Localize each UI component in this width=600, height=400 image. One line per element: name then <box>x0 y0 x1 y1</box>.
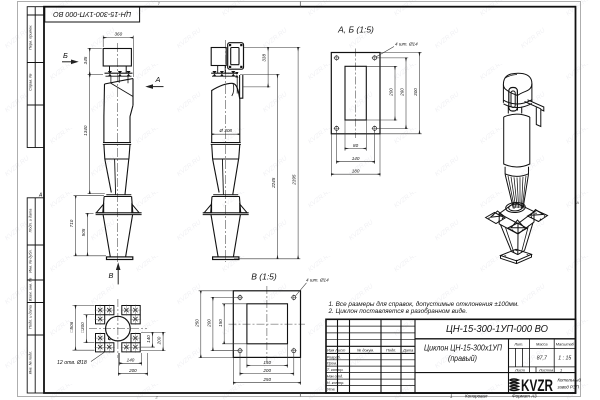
svg-text:1 : 15: 1 : 15 <box>558 356 571 362</box>
svg-text:А: А <box>38 192 43 198</box>
svg-text:200: 200 <box>262 368 271 373</box>
svg-text:140: 140 <box>127 357 135 362</box>
svg-text:Пров.: Пров. <box>327 361 337 366</box>
svg-text:Изм Лист: Изм Лист <box>327 348 346 353</box>
svg-text:140: 140 <box>352 156 360 161</box>
svg-text:4 шт. Ø14: 4 шт. Ø14 <box>306 278 329 283</box>
svg-text:№ докум.: № докум. <box>357 348 374 353</box>
svg-text:Перв. примен.: Перв. примен. <box>29 25 33 50</box>
svg-text:Утв.: Утв. <box>327 387 336 392</box>
svg-text:2245: 2245 <box>271 177 276 189</box>
svg-text:Масштаб: Масштаб <box>556 342 575 347</box>
svg-text:150: 150 <box>263 360 271 365</box>
svg-text:Листов: Листов <box>538 368 553 373</box>
svg-text:Дата: Дата <box>402 348 414 353</box>
svg-text:4 шт. Ø14: 4 шт. Ø14 <box>395 42 418 47</box>
svg-text:А, Б (1:5): А, Б (1:5) <box>337 25 374 35</box>
svg-text:12 отв. Ø18: 12 отв. Ø18 <box>57 360 87 366</box>
svg-text:Взам. инв. №: Взам. инв. № <box>29 278 33 301</box>
svg-text:2. Циклон поставляется в разоб: 2. Циклон поставляется в разобранном вид… <box>328 307 468 315</box>
svg-text:1: 1 <box>560 368 562 373</box>
svg-text:Т. контр.: Т. контр. <box>327 367 344 372</box>
svg-text:505: 505 <box>81 228 86 236</box>
svg-text:345: 345 <box>83 56 88 64</box>
svg-text:710: 710 <box>69 219 74 227</box>
svg-text:Справ. №: Справ. № <box>29 74 33 91</box>
svg-text:338: 338 <box>262 54 267 62</box>
svg-text:140: 140 <box>146 335 151 343</box>
svg-text:Формат А3: Формат А3 <box>512 394 537 399</box>
svg-text:Ø 308: Ø 308 <box>218 128 232 133</box>
svg-text:1340: 1340 <box>83 125 88 136</box>
svg-text:Котельный: Котельный <box>558 378 582 383</box>
svg-text:80: 80 <box>353 143 359 148</box>
svg-text:Инв. № дубл.: Инв. № дубл. <box>29 249 33 272</box>
svg-text:□506: □506 <box>69 321 74 332</box>
svg-text:Подп. и дата: Подп. и дата <box>29 209 33 233</box>
svg-text:Б: Б <box>63 51 68 60</box>
svg-text:Подп.: Подп. <box>386 348 396 353</box>
svg-text:300: 300 <box>413 88 418 96</box>
svg-text:200: 200 <box>389 88 394 97</box>
svg-text:1. Все размеры для справок, до: 1. Все размеры для справок, допустимые о… <box>329 300 520 308</box>
svg-text:260: 260 <box>400 88 405 97</box>
svg-text:2395: 2395 <box>292 174 297 186</box>
svg-text:Подп. и дата: Подп. и дата <box>29 305 33 329</box>
svg-text:Циклон ЦН-15-300х1УП: Циклон ЦН-15-300х1УП <box>424 343 503 353</box>
svg-text:200: 200 <box>207 319 212 328</box>
svg-text:150: 150 <box>218 319 223 327</box>
svg-text:200: 200 <box>157 336 162 345</box>
svg-text:250: 250 <box>194 319 199 328</box>
svg-text:ЦН-15-300-1УП-000 ВО: ЦН-15-300-1УП-000 ВО <box>446 324 548 335</box>
svg-text:Копировал: Копировал <box>465 394 488 399</box>
svg-text:Нач.отд.: Нач.отд. <box>327 374 343 379</box>
svg-text:Лит.: Лит. <box>513 342 523 347</box>
svg-text:А: А <box>575 200 579 205</box>
svg-text:(правый): (правый) <box>448 353 477 363</box>
svg-text:ЦН-15-300-1УП-000 ВО: ЦН-15-300-1УП-000 ВО <box>53 10 131 19</box>
svg-text:В: В <box>109 271 114 280</box>
svg-text:Н. контр.: Н. контр. <box>327 380 345 385</box>
svg-text:360: 360 <box>114 31 122 36</box>
svg-text:Разраб.: Разраб. <box>327 354 341 359</box>
svg-text:Лист: Лист <box>514 368 526 373</box>
svg-text:200: 200 <box>128 368 137 373</box>
svg-text:□300: □300 <box>80 322 85 333</box>
svg-text:завод РЭП: завод РЭП <box>557 385 580 390</box>
svg-text:250: 250 <box>262 377 271 382</box>
svg-text:180: 180 <box>352 169 360 174</box>
svg-text:Инв. № подл.: Инв. № подл. <box>29 351 33 375</box>
svg-text:87,7: 87,7 <box>537 356 548 362</box>
svg-text:А: А <box>155 75 161 84</box>
svg-text:KVZR: KVZR <box>521 377 553 395</box>
svg-text:Масса: Масса <box>536 342 548 347</box>
svg-text:В (1:5): В (1:5) <box>251 272 277 282</box>
